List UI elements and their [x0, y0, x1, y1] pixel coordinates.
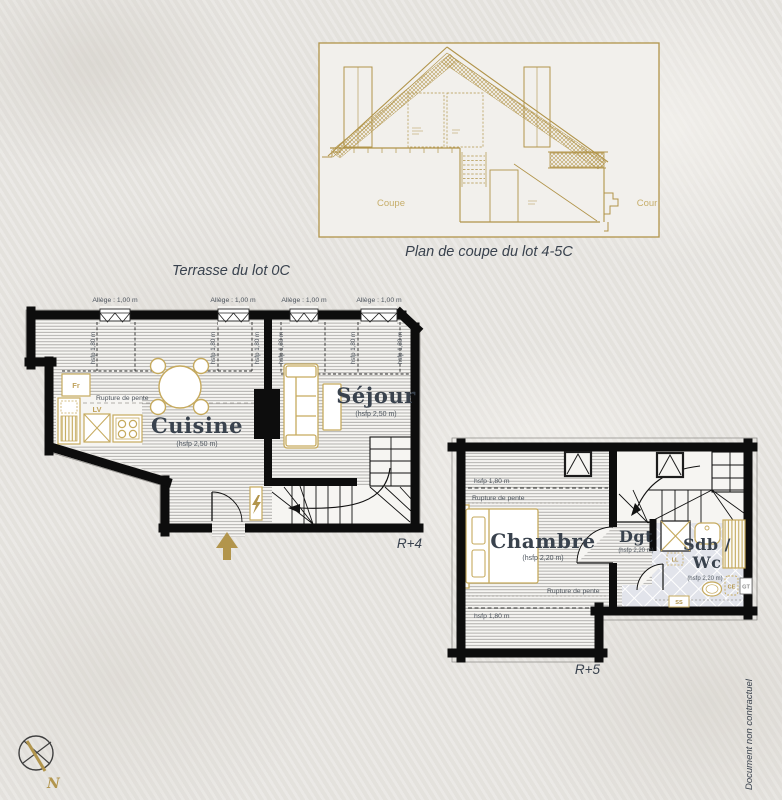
north-needle-icon [27, 741, 45, 771]
stove [113, 415, 142, 442]
floor-plan-r5: hsfp 1,80 m Rupture de pente Rupture de … [452, 438, 757, 677]
compass: N [19, 736, 61, 792]
section-label-coupe: Coupe [377, 198, 405, 209]
r5-rupture-top: Rupture de pente [472, 495, 525, 502]
room-height-cuisine: (hsfp 2,50 m) [176, 441, 217, 448]
washing-machine-label: LL [672, 558, 679, 564]
toilet [703, 582, 722, 596]
window-icon [218, 306, 249, 325]
svg-text:hsfp 1,80 m: hsfp 1,80 m [397, 332, 404, 364]
allege-label: Allège : 1,00 m [210, 297, 256, 304]
dining-table [151, 359, 209, 415]
side-note: Document non contractuel [744, 678, 755, 790]
dishwasher-label: LV [92, 405, 101, 414]
room-height-sejour: (hsfp 2,50 m) [355, 411, 396, 418]
floorplan-document: Coupe Cour Plan de coupe du lot 4-5C Ter… [0, 0, 782, 800]
section-label-cour: Cour [637, 198, 658, 209]
section-caption: Plan de coupe du lot 4-5C [405, 244, 573, 260]
window-icon [361, 306, 397, 325]
room-label-sdb-line1: Sdb / [683, 535, 731, 554]
north-label: N [46, 776, 61, 792]
svg-text:hsfp 1,80 m: hsfp 1,80 m [350, 332, 357, 364]
floor-plan-r4: Terrasse du lot 0C hsfp 1,80 m hsfp 1,80… [26, 263, 422, 560]
window-icon [100, 306, 130, 325]
svg-text:hsfp 1,80 m: hsfp 1,80 m [90, 332, 97, 364]
svg-text:hsfp 1,80 m: hsfp 1,80 m [278, 332, 285, 364]
svg-text:hsfp 1,80 m: hsfp 1,80 m [210, 332, 217, 364]
section-drawing: Coupe Cour [319, 43, 659, 237]
water-heater-label: CE [728, 585, 736, 591]
terrace-title: Terrasse du lot 0C [172, 263, 290, 279]
room-height-dgt: (hsfp 2,20 m) [618, 548, 653, 554]
r5-hsfp-bottom: hsfp 1,80 m [474, 613, 510, 620]
window-icon [290, 306, 318, 325]
level-label-r5: R+5 [575, 662, 601, 677]
room-label-cuisine: Cuisine [151, 413, 243, 438]
room-height-chambre: (hsfp 2,20 m) [522, 555, 563, 562]
sofa [284, 364, 318, 448]
chimney-block [254, 389, 280, 439]
section-frame [319, 43, 659, 237]
fridge-label: Fr [72, 381, 80, 390]
allege-label: Allège : 1,00 m [281, 297, 327, 304]
room-label-sejour: Séjour [336, 383, 416, 408]
room-label-chambre: Chambre [490, 529, 595, 553]
towel-rail-label: SS [675, 600, 683, 606]
allege-label: Allège : 1,00 m [92, 297, 138, 304]
velux-icon [565, 452, 591, 476]
r5-rupture-bottom: Rupture de pente [547, 588, 600, 595]
level-label-r4: R+4 [397, 536, 422, 551]
svg-text:hsfp 1,80 m: hsfp 1,80 m [254, 332, 261, 364]
room-height-sdb: (hsfp 2,20 m) [687, 576, 722, 582]
room-label-dgt: Dgt [619, 527, 653, 546]
balustrade [550, 153, 604, 167]
duct-label: GT [742, 585, 750, 591]
r5-hsfp-top: hsfp 1,80 m [474, 478, 510, 485]
r4-rupture-label: Rupture de pente [96, 395, 149, 402]
allege-label: Allège : 1,00 m [356, 297, 402, 304]
velux-icon [657, 453, 683, 477]
room-label-sdb-line2: Wc [692, 553, 722, 572]
